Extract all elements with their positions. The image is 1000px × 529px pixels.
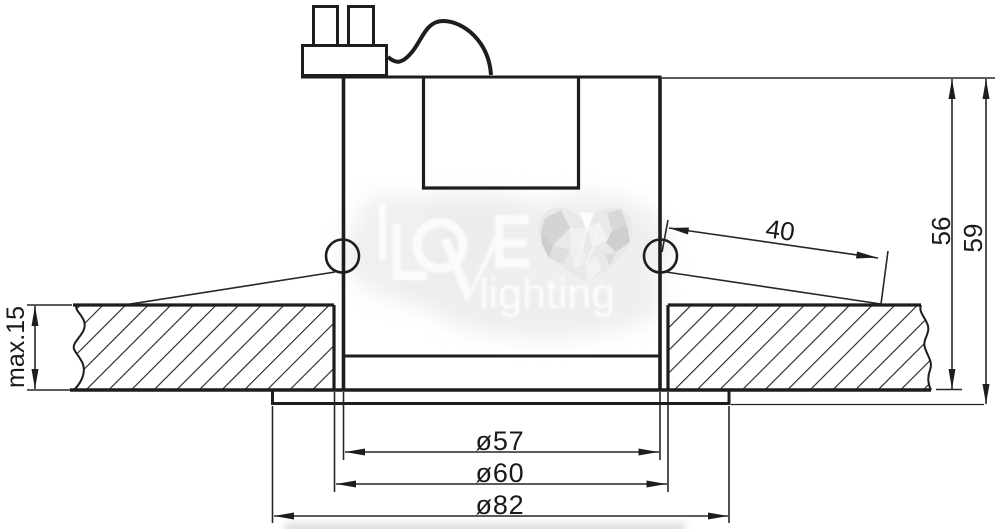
svg-text:max.15: max.15 — [2, 306, 30, 388]
svg-text:ø82: ø82 — [476, 490, 525, 520]
svg-text:ø60: ø60 — [476, 458, 525, 488]
svg-text:40: 40 — [764, 213, 797, 247]
svg-text:lighting: lighting — [479, 270, 615, 318]
svg-text:59: 59 — [958, 224, 988, 253]
svg-text:ø57: ø57 — [476, 426, 525, 456]
svg-text:56: 56 — [926, 217, 956, 246]
